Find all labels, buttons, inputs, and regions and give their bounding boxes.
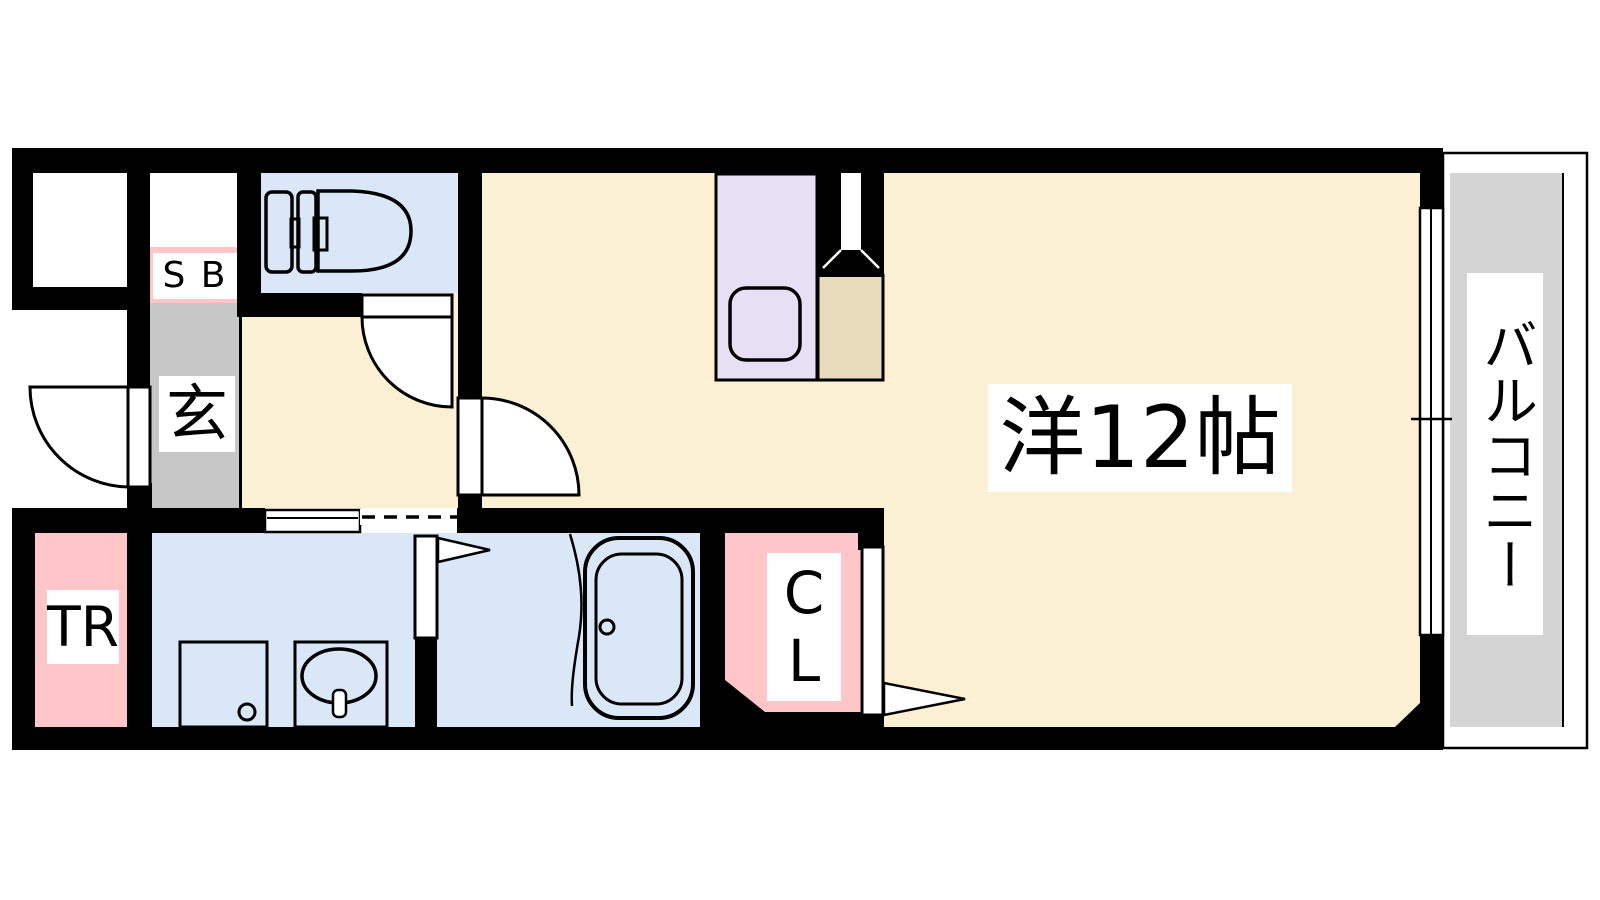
entrance-label: 玄 <box>159 376 235 452</box>
entrance-hall-edge-line <box>239 303 242 508</box>
wall-hall-right-upper <box>458 148 482 398</box>
wall-left-lower <box>12 508 35 750</box>
main-room-label: 洋12帖 <box>988 384 1292 492</box>
closet-door-leaf <box>862 547 883 715</box>
wall-closet-right-lower <box>858 712 884 750</box>
wall-mid-right <box>457 508 884 533</box>
floor-plan-canvas: S B 玄 TR CL 洋12帖 バルコニー <box>0 0 1600 900</box>
trunk-room-label: TR <box>47 590 119 664</box>
entrance-door-leaf <box>128 387 150 487</box>
washroom-sliding-door-panel <box>265 510 360 532</box>
wall-window-jamb-top <box>1420 173 1443 208</box>
wall-hall-right-lower <box>458 495 482 533</box>
wall-entrance-upper <box>127 148 150 390</box>
wall-washroom-bath-divider <box>415 638 437 727</box>
bathroom-door-leaf <box>415 536 437 638</box>
appliance-space <box>818 275 883 380</box>
vanity-tap-icon <box>333 690 346 717</box>
wall-mid-left <box>12 508 265 533</box>
shoe-box-label: S B <box>153 253 237 299</box>
toilet-door-leaf <box>362 295 452 317</box>
wall-toilet-bottom <box>237 293 362 317</box>
wall-closet-bottom <box>700 712 884 750</box>
balcony-label: バルコニー <box>1467 273 1543 635</box>
closet-label: CL <box>767 553 841 701</box>
wall-window-jamb-bottom <box>1420 635 1443 750</box>
duct-slot <box>841 173 861 250</box>
wall-closet-right-upper <box>858 508 884 550</box>
wall-toilet-left <box>237 148 261 317</box>
wall-left-upper <box>12 148 33 310</box>
floor-plan-drawing <box>0 0 1600 900</box>
room-door-leaf <box>458 398 482 495</box>
wall-top <box>15 148 1443 173</box>
